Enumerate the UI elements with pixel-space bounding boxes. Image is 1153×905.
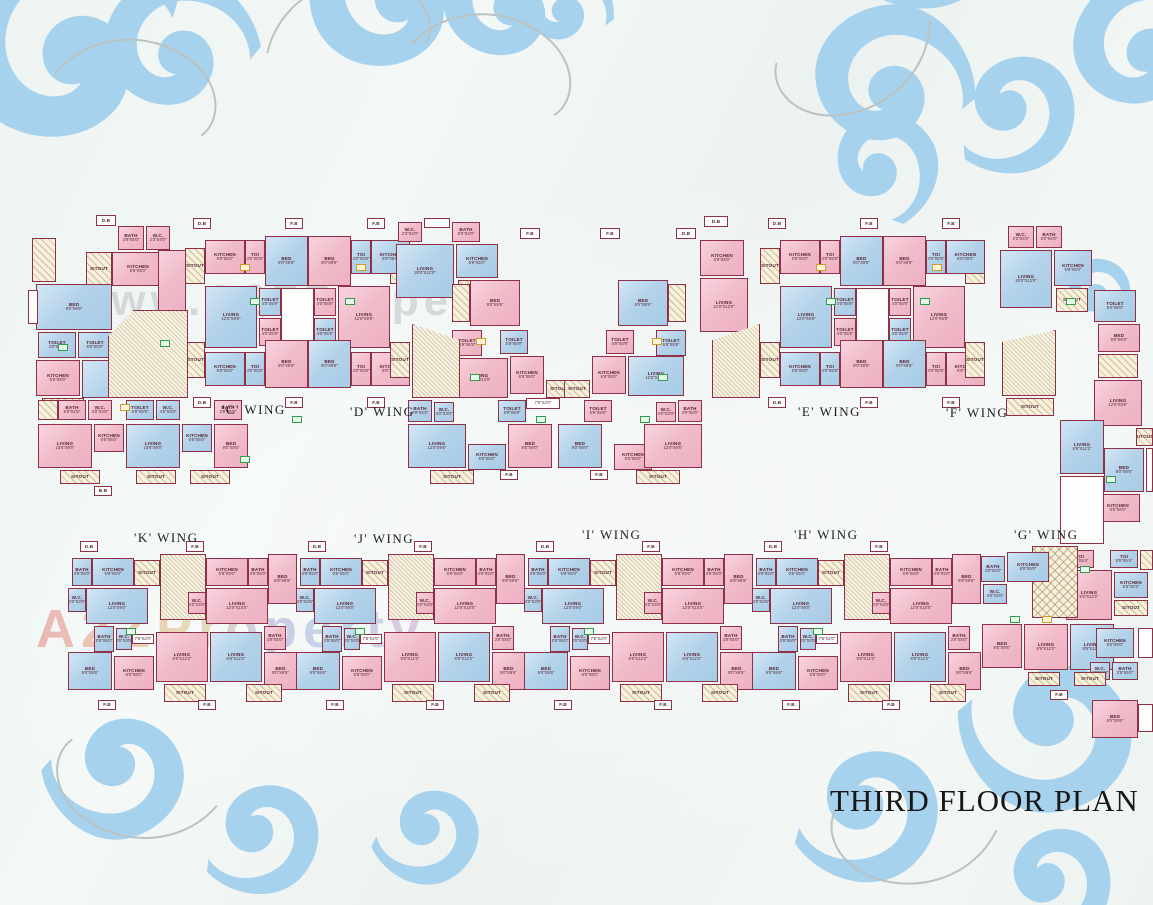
room-kitchen: KITCHEN6'9"X5'0": [1054, 250, 1092, 286]
room-bed: BED9'0"X9'6": [1092, 700, 1138, 738]
room-dimensions: 3'9"X5'0": [758, 572, 775, 577]
room-db: D.B: [764, 541, 782, 552]
green-dimension-marker: [813, 628, 823, 635]
room-bed: BED9'0"X9'6": [36, 284, 112, 330]
room-dimensions: 4'0"X3'0": [116, 639, 132, 644]
room-label: D.B: [541, 544, 550, 549]
room-dimensions: 4'0"X5'9": [822, 257, 839, 262]
room-dimensions: 4'0"X3'0": [297, 600, 314, 605]
room-bath: BATH5'0"X4'0": [452, 222, 480, 242]
room-kitchen: KITCHEN6'9"X5'0": [780, 240, 820, 274]
room-dimensions: 4'0"X3'0": [525, 600, 542, 605]
room-dimensions: 4'0"X3'0": [92, 410, 109, 415]
room-bath: BATH3'9"X5'0": [300, 558, 320, 586]
room-label: F.B: [647, 544, 655, 549]
room-living: LIVING12'0"X12'0": [700, 278, 748, 332]
room-dimensions: 4'0"X5'9": [262, 302, 279, 307]
room-dimensions: 12'0"X9'6": [1108, 403, 1127, 408]
room-living: LIVING12'0"X9'0": [542, 588, 604, 624]
room-fb: F.B: [367, 218, 385, 229]
room-dimensions: 2'3"X4'0": [150, 238, 167, 243]
room-dimensions: 12'0"X9'0": [791, 606, 810, 611]
room-db: D.B: [193, 397, 211, 408]
room-dimensions: 6'9"X5'0": [675, 572, 692, 577]
room-dimensions: 9'0"X9'6": [766, 671, 783, 676]
room-w: [1146, 448, 1153, 492]
room-label: D.B: [198, 221, 207, 226]
room-bb: B.B: [94, 486, 112, 496]
room-dimensions: 6'9"X9'6": [730, 579, 747, 584]
room-bed: BED9'0"X9'6": [1104, 448, 1144, 492]
room-living: LIVING12'0"X10'0": [890, 588, 952, 624]
room-toilet: TOILET4'0"X5'9": [834, 288, 856, 316]
room-living: LIVING12'0"X10'0": [662, 588, 724, 624]
room-kitchen: KITCHEN6'5"X8'0": [798, 656, 838, 690]
room-dimensions: 6'9"X5'0": [903, 572, 920, 577]
room-living: LIVING20'0"X12'0": [1000, 250, 1052, 308]
room-kitchen: KITCHEN6'9"X5'0": [1007, 552, 1049, 582]
room-dimensions: 6'9"X5'0": [333, 572, 350, 577]
room-wc: W.C.4'0"X3'0": [524, 588, 542, 612]
room-sitout: SITOUT: [60, 470, 100, 484]
room-wc: W.C.4'0"X3'0": [872, 592, 890, 614]
room-label: F.B: [290, 400, 298, 405]
room-dimensions: 6'9"X5'0": [957, 257, 974, 262]
room-living: LIVING12'0"X12'0": [452, 358, 508, 398]
room-label: SITOUT: [138, 570, 156, 575]
room-label: D.B: [198, 400, 207, 405]
room-dimensions: 8'9"X12'2": [1036, 647, 1055, 652]
room-bath: BATH5'9"X2'6": [58, 400, 86, 420]
room-db: D.B: [704, 216, 728, 227]
room-wc: W.C.4'0"X3'0": [156, 400, 180, 420]
room-bed: BED6'9"X9'6": [496, 554, 525, 604]
room-dimensions: 4'0"X3'0": [645, 603, 662, 608]
room-dimensions: 9'0"X9'9": [278, 261, 295, 266]
room-dimensions: 12'0"X9'6": [427, 446, 446, 451]
green-dimension-marker: [1080, 566, 1090, 573]
room-fb: F.B: [642, 541, 660, 552]
room-dimensions: 9'0"X9'6": [1116, 470, 1133, 475]
room-dimensions: 3'9"X5'0": [267, 638, 284, 643]
room-living: LIVING12'0"X9'0": [770, 588, 832, 624]
room-toilet: TOILET5'9"X5'9": [500, 330, 528, 354]
orange-dimension-marker: [816, 264, 826, 271]
staircase: [712, 324, 760, 398]
green-dimension-marker: [658, 374, 668, 381]
room-living: LIVING12'0"X9'9": [913, 286, 965, 348]
room-living: LIVING8'9"X12'2": [612, 632, 664, 682]
room-kitchen: KITCHEN6'9"X5'0": [320, 558, 362, 586]
room-kitchen: KITCHEN6'5"X5'0": [468, 444, 506, 470]
room-sitout: SITOUT: [760, 248, 780, 284]
room-label: SITOUT: [443, 474, 461, 479]
room-toilet: TOILET4'0"X5'9": [259, 288, 281, 316]
room-dimensions: 3'9"X5'0": [530, 572, 547, 577]
room-bed: BED9'0"X9'6": [68, 652, 112, 690]
room-dimensions: 9'0"X9'6": [500, 671, 517, 676]
room-dimensions: 3'9"X5'0": [123, 238, 140, 243]
green-dimension-marker: [292, 416, 302, 423]
room-dimensions: 4'0"X5'9": [822, 369, 839, 374]
room-fb: F.B: [426, 700, 444, 710]
room-dimensions: 3'9"X5'0": [478, 572, 495, 577]
room-dimensions: 6'9"X5'0": [105, 572, 122, 577]
orange-dimension-marker: [240, 264, 250, 271]
room-kitchen: KITCHEN6'9"X5'0": [662, 558, 704, 586]
room-wc: W.C.4'0"X3'0": [188, 592, 206, 614]
room-bath: BATH3'9"X5'0": [720, 626, 742, 650]
room-dimensions: 8'9"X12'2": [910, 657, 929, 662]
room-bed: BED9'0"X9'6": [524, 652, 568, 690]
room-sitout: SITOUT: [190, 470, 230, 484]
room-sitout: SITOUT: [390, 342, 410, 378]
room-dimensions: 6'9"X5'0": [714, 258, 731, 263]
room-sitout: SITOUT: [1114, 600, 1148, 616]
room-label: F.B: [1055, 692, 1063, 697]
room-dimensions: 8'9"X12'2": [856, 657, 875, 662]
room-dimensions: 6'9"X5'0": [792, 369, 809, 374]
room-kitchen: KITCHEN6'5"X8'0": [342, 656, 382, 690]
room-dimensions: 3'9"X5'0": [302, 572, 319, 577]
room-living: LIVING8'9"X12'2": [894, 632, 946, 682]
room-label: F.B: [431, 702, 439, 707]
room-dimensions: 4'0"X5'9": [892, 332, 909, 337]
room-kitchen: KITCHEN6'5"X5'0": [1096, 628, 1134, 658]
orange-dimension-marker: [652, 338, 662, 345]
room-dimensions: 6'5"X8'0": [126, 673, 143, 678]
room-living: LIVING12'0"X12'0": [628, 356, 684, 396]
room-label: SITOUT: [939, 690, 957, 695]
room-sitout: SITOUT: [86, 252, 112, 286]
room-dimensions: 4'0"X5'9": [837, 302, 854, 307]
room-dimensions: 6'5"X5'0": [189, 438, 206, 443]
room-bed: BED6'9"X9'6": [268, 554, 297, 604]
room-living: LIVING8'9"X12'2": [1060, 420, 1104, 474]
room-bath: BATH3'9"X5'0": [72, 558, 92, 586]
room-wc: W.C.4'0"X3'0": [416, 592, 434, 614]
room-dimensions: 4'0"X3'0": [160, 410, 177, 415]
room-dimensions: 6'9"X9'6": [958, 579, 975, 584]
room-label: SITOUT: [176, 690, 194, 695]
room-dimensions: 4'0"X5'9": [262, 332, 279, 337]
green-dimension-marker: [584, 628, 594, 635]
room-w: [28, 290, 38, 324]
room-p: [158, 250, 186, 318]
room-bed: BED9'0"X6'6": [1098, 324, 1140, 352]
room-dimensions: 6'5"X8'0": [810, 673, 827, 678]
room-label: F.B: [203, 702, 211, 707]
room-bath: BATH3'9"X5'0": [322, 626, 342, 652]
room-sitout: SITOUT: [564, 380, 590, 398]
room-dimensions: 9'0"X9'0": [572, 446, 589, 451]
room-wc: W.C.2'3"X4'0": [1008, 226, 1034, 248]
room-dimensions: 8'9"X12'2": [682, 657, 701, 662]
staircase: [108, 310, 188, 398]
room-sitout: SITOUT: [965, 342, 985, 378]
room-dimensions: 5'9"X5'9": [612, 342, 629, 347]
room-label: F.B: [595, 472, 603, 477]
room-bath: BATH3'9"X5'0": [550, 626, 570, 652]
room-dimensions: 4'0"X3'0": [417, 603, 434, 608]
room-dimensions: 5'9"X2'6": [64, 410, 81, 415]
green-dimension-marker: [126, 628, 136, 635]
room-dimensions: 5'9"X5'9": [663, 343, 680, 348]
room-dimensions: 4'0"X5'9": [892, 302, 909, 307]
room-dimensions: 5'5"X8'0": [50, 378, 67, 383]
room-dimensions: 5'9"X5'9": [506, 342, 523, 347]
room-dimensions: 6'9"X5'0": [561, 572, 578, 577]
room-dimensions: 12'0"X9'9": [796, 317, 815, 322]
room-living: LIVING20'0"X12'0": [396, 244, 454, 298]
room-wc: W.C.4'0"X3'0": [644, 592, 662, 614]
room-dimensions: 5'5"X6'0": [1110, 508, 1127, 513]
room-dimensions: 9'0"X9'6": [66, 307, 83, 312]
room-wc: W.C.2'3"X4'0": [146, 226, 170, 250]
room-toilet: TOILET5'9"X5'9": [126, 400, 154, 420]
room-dimensions: 4'0"X3'0": [69, 600, 86, 605]
room-label: SITOUT: [366, 570, 384, 575]
room-dimensions: 6'9"X5'0": [217, 369, 234, 374]
room-dimensions: 3'9"X5'0": [552, 639, 569, 644]
room-dimensions: 9'0"X9'6": [728, 671, 745, 676]
room-label: F.B: [787, 702, 795, 707]
room-toi: TOI4'0"X5'9": [926, 352, 946, 386]
room-kitchen: KITCHEN6'9"X5'0": [112, 252, 164, 286]
room-living: LIVING12'0"X9'9": [338, 286, 390, 348]
room-dimensions: 7'6"X2'0": [535, 401, 552, 406]
room-bed: BED6'9"X9'6": [724, 554, 753, 604]
room-dimensions: 5'0"X4'0": [1041, 237, 1058, 242]
room-wc: W.C.4'0"X3'0": [656, 402, 676, 422]
room-dimensions: 4'0"X3'0": [987, 594, 1004, 599]
room-label: SITOUT: [71, 474, 89, 479]
room-dimensions: 12'0"X9'6": [663, 446, 682, 451]
room-label: D.B: [85, 544, 94, 549]
room-dimensions: 9'0"X6'6": [1111, 338, 1128, 343]
room-kitchen: KITCHEN6'9"X5'0": [592, 356, 626, 394]
room-dimensions: 4'0"X5'9": [837, 332, 854, 337]
room-dimensions: 6'5"X5'0": [101, 438, 118, 443]
room-dimensions: 6'5"X8'0": [582, 673, 599, 678]
room-w: [281, 288, 314, 346]
room-label: F.B: [865, 221, 873, 226]
room-dimensions: 6'9"X5'0": [792, 257, 809, 262]
room-label: SITOUT: [1035, 676, 1053, 681]
room-kitchen: KITCHEN6'9"X5'0": [92, 558, 134, 586]
room-toi: TOI4'0"X5'9": [351, 352, 371, 386]
wing-label-jwing: 'J' WING: [354, 531, 414, 547]
room-kitchen: KITCHEN6'5"X8'0": [570, 656, 610, 690]
room-kitchen: KITCHEN6'5"X5'0": [94, 424, 124, 452]
room-label: SITOUT: [1122, 605, 1140, 610]
room-label: F.B: [526, 231, 534, 236]
room-label: D.B: [773, 400, 782, 405]
wing-label-cwing: 'C' WING: [222, 402, 286, 418]
room-dimensions: 9'0"X9'9": [896, 261, 913, 266]
room-dimensions: 6'5"X5'0": [625, 457, 642, 462]
room-kitchen: KITCHEN6'9"X5'0": [776, 558, 818, 586]
room-bath: BATH3'9"X5'0": [1112, 662, 1138, 680]
room-kitchen: KITCHEN6'9"X5'0": [946, 240, 985, 274]
room-dimensions: 7'6"X2'0": [819, 637, 836, 642]
room-label: SITOUT: [594, 570, 612, 575]
room-fb: F.B: [285, 218, 303, 229]
room-bath: BATH3'9"X5'0": [756, 558, 776, 586]
room-dimensions: 4'0"X5'9": [247, 369, 264, 374]
room-bath: BATH3'9"X5'0": [528, 558, 548, 586]
room-toilet: TOILET5'9"X5'9": [584, 400, 612, 422]
room-c: [1098, 354, 1138, 378]
room-sitout: SITOUT: [185, 342, 205, 378]
room-kitchen: KITCHEN6'9"X5'0": [434, 558, 476, 586]
wing-label-gwing: 'G' WING: [1014, 527, 1078, 543]
room-label: F.B: [947, 221, 955, 226]
room-dimensions: 4'0"X5'9": [353, 369, 370, 374]
room-c: [38, 400, 58, 420]
room-dimensions: 9'0"X9'6": [994, 646, 1011, 651]
wing-label-kwing: 'K' WING: [134, 530, 198, 546]
room-fb: F.B: [882, 700, 900, 710]
room-dimensions: 20'0"X12'0": [1015, 279, 1036, 284]
room-fb: F.B: [942, 218, 960, 229]
room-label: SITOUT: [822, 570, 840, 575]
room-toi: TOI4'0"X5'9": [820, 352, 840, 386]
room-fb: F.B: [554, 700, 572, 710]
room-living: LIVING8'9"X12'2": [438, 632, 490, 682]
room-dimensions: 4'0"X5'9": [928, 369, 945, 374]
room-dimensions: 6'9"X5'0": [789, 572, 806, 577]
room-wc: W.C.4'0"X3'0": [752, 588, 770, 612]
room-bed: BED9'0"X9'0": [558, 424, 602, 468]
room-dimensions: 10'6"X9'0": [143, 446, 162, 451]
room-w: [856, 288, 889, 346]
room-label: SITOUT: [90, 266, 108, 271]
room-dimensions: 8'0"X12'2": [1079, 595, 1098, 600]
room-fb: F.B: [98, 700, 116, 710]
green-dimension-marker: [240, 456, 250, 463]
room-kitchen: KITCHEN6'9"X5'0": [205, 352, 245, 386]
room-dimensions: 9'0"X9'6": [82, 671, 99, 676]
room-toilet: TOILET3'9"X5'9": [38, 332, 76, 358]
room-dimensions: 4'0"X5'9": [928, 257, 945, 262]
room-db: D.B: [96, 215, 116, 226]
room-label: F.B: [606, 231, 614, 236]
room-toilet: TOILET4'0"X5'9": [889, 288, 911, 316]
room-sitout: SITOUT: [818, 560, 844, 586]
green-dimension-marker: [536, 416, 546, 423]
room-label: F.B: [331, 702, 339, 707]
room-bath: BATH3'9"X5'0": [264, 626, 286, 650]
room-dimensions: 8'9"X12'2": [400, 657, 419, 662]
room-dimensions: 9'0"X9'6": [272, 671, 289, 676]
room-sitout: SITOUT: [1006, 398, 1054, 416]
green-dimension-marker: [345, 298, 355, 305]
room-label: F.B: [865, 400, 873, 405]
room-label: SITOUT: [632, 690, 650, 695]
room-fb: F.B: [860, 218, 878, 229]
room-bath: BATH3'9"X5'0": [248, 558, 268, 586]
page-title: THIRD FLOOR PLAN: [830, 783, 1139, 819]
room-fb: F.B: [860, 397, 878, 408]
room-dimensions: 6'9"X5'0": [130, 269, 147, 274]
room-dimensions: 6'9"X5'0": [519, 375, 536, 380]
room-kitchen: KITCHEN6'9"X5'0": [890, 558, 932, 586]
room-bath: BATH3'9"X5'0": [981, 556, 1005, 582]
room-living: LIVING10'6"X9'0": [126, 424, 180, 468]
room-dimensions: 12'0"X9'9": [221, 317, 240, 322]
room-fb: F.B: [198, 700, 216, 710]
room-dimensions: 12'0"X10'0": [226, 606, 247, 611]
room-label: SITOUT: [186, 263, 204, 268]
room-kitchen: KITCHEN6'9"X5'0": [510, 356, 544, 394]
room-fb: F.B: [520, 228, 540, 239]
room-living: LIVING12'0"X9'0": [86, 588, 148, 624]
room-bed: BED9'0"X9'9": [883, 340, 926, 388]
room-label: SITOUT: [201, 474, 219, 479]
room-bed: BED9'0"X9'6": [752, 652, 796, 690]
room-dimensions: 6'9"X5'0": [601, 375, 618, 380]
room-toilet: TOILET5'9"X5'9": [606, 330, 634, 354]
room-fb: F.B: [590, 470, 608, 480]
room-w: 7'6"X2'0": [526, 398, 560, 409]
room-kitchen: KITCHEN6'9"X5'0": [205, 240, 245, 274]
room-db: D.B: [536, 541, 554, 552]
green-dimension-marker: [1106, 476, 1116, 483]
green-dimension-marker: [58, 344, 68, 351]
room-dimensions: 9'0"X9'9": [635, 303, 652, 308]
room-wc: W.C.2'3"X4'0": [398, 222, 422, 242]
green-dimension-marker: [826, 298, 836, 305]
room-dimensions: 6'5"X5'0": [1107, 643, 1124, 648]
room-dimensions: 6'0"X8'0": [1107, 306, 1124, 311]
room-label: D.B: [313, 544, 322, 549]
room-dimensions: 9'0"X9'9": [896, 364, 913, 369]
room-dimensions: 12'0"X9'0": [107, 606, 126, 611]
room-wc: W.C.4'0"X3'0": [88, 400, 112, 420]
room-dimensions: 4'0"X3'0": [658, 412, 675, 417]
room-dimensions: 6'5"X5'0": [479, 457, 496, 462]
room-living: LIVING8'9"X12'2": [384, 632, 436, 682]
room-label: D.B: [773, 221, 782, 226]
room-dimensions: 8'9"X12'2": [628, 657, 647, 662]
room-sitout: SITOUT: [590, 560, 616, 586]
room-dimensions: 8'9"X12'2": [226, 657, 245, 662]
room-bed: BED9'0"X9'6": [296, 652, 340, 690]
room-label: B.B: [99, 488, 108, 493]
room-dimensions: 4'0"X3'0": [753, 600, 770, 605]
room-living: LIVING12'0"X9'6": [644, 424, 702, 468]
room-dimensions: 3'9"X5'0": [723, 638, 740, 643]
room-wc: W.C.4'0"X3'0": [434, 402, 454, 422]
room-bath: BATH3'9"X5'0": [778, 626, 798, 652]
room-label: D.B: [712, 219, 721, 224]
room-dimensions: 3'9"X5'0": [985, 569, 1002, 574]
room-dimensions: 5'5"X6'2": [1123, 585, 1140, 590]
room-dimensions: 3'9"X5'0": [74, 572, 91, 577]
room-w: 7'6"X2'0": [816, 634, 838, 644]
room-sitout: SITOUT: [1074, 672, 1106, 686]
room-dimensions: 7'6"X2'0": [363, 637, 380, 642]
room-dimensions: 6'9"X5'0": [1020, 567, 1037, 572]
room-dimensions: 9'0"X9'0": [522, 446, 539, 451]
room-dimensions: 2'3"X4'0": [1013, 237, 1030, 242]
room-bath: BATH3'9"X5'0": [704, 558, 724, 586]
room-label: SITOUT: [1081, 676, 1099, 681]
room-dimensions: 4'0"X5'9": [353, 257, 370, 262]
room-db: D.B: [308, 541, 326, 552]
room-label: SITOUT: [483, 690, 501, 695]
